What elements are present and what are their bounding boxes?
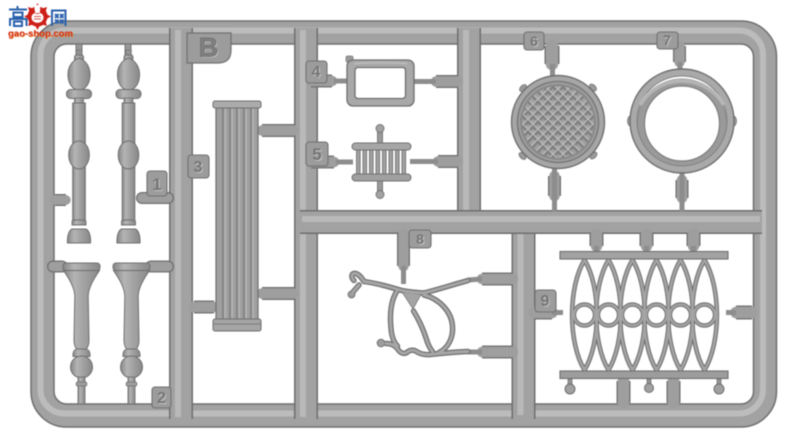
svg-text:7: 7 [663, 32, 671, 48]
svg-text:9: 9 [541, 293, 550, 310]
svg-text:2: 2 [157, 390, 166, 407]
svg-text:6: 6 [530, 33, 538, 49]
svg-text:4: 4 [312, 64, 321, 81]
svg-text:B: B [199, 33, 219, 63]
svg-text:gao-shop.com: gao-shop.com [8, 28, 73, 39]
svg-text:1: 1 [152, 175, 161, 194]
svg-text:3: 3 [194, 159, 203, 176]
svg-text:5: 5 [312, 145, 321, 164]
svg-text:8: 8 [416, 231, 424, 247]
